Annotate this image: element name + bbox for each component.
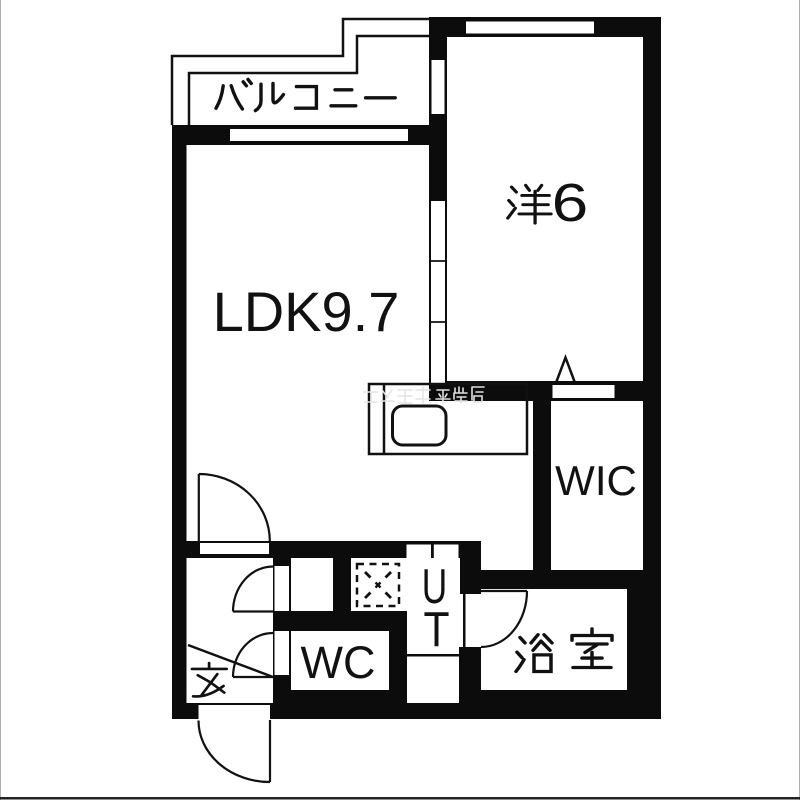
- svg-text:WIC: WIC: [555, 457, 637, 504]
- svg-text:T: T: [423, 601, 449, 656]
- svg-text:LDK9.7: LDK9.7: [213, 280, 400, 343]
- svg-text:6: 6: [552, 172, 589, 233]
- svg-text:WC: WC: [301, 637, 376, 688]
